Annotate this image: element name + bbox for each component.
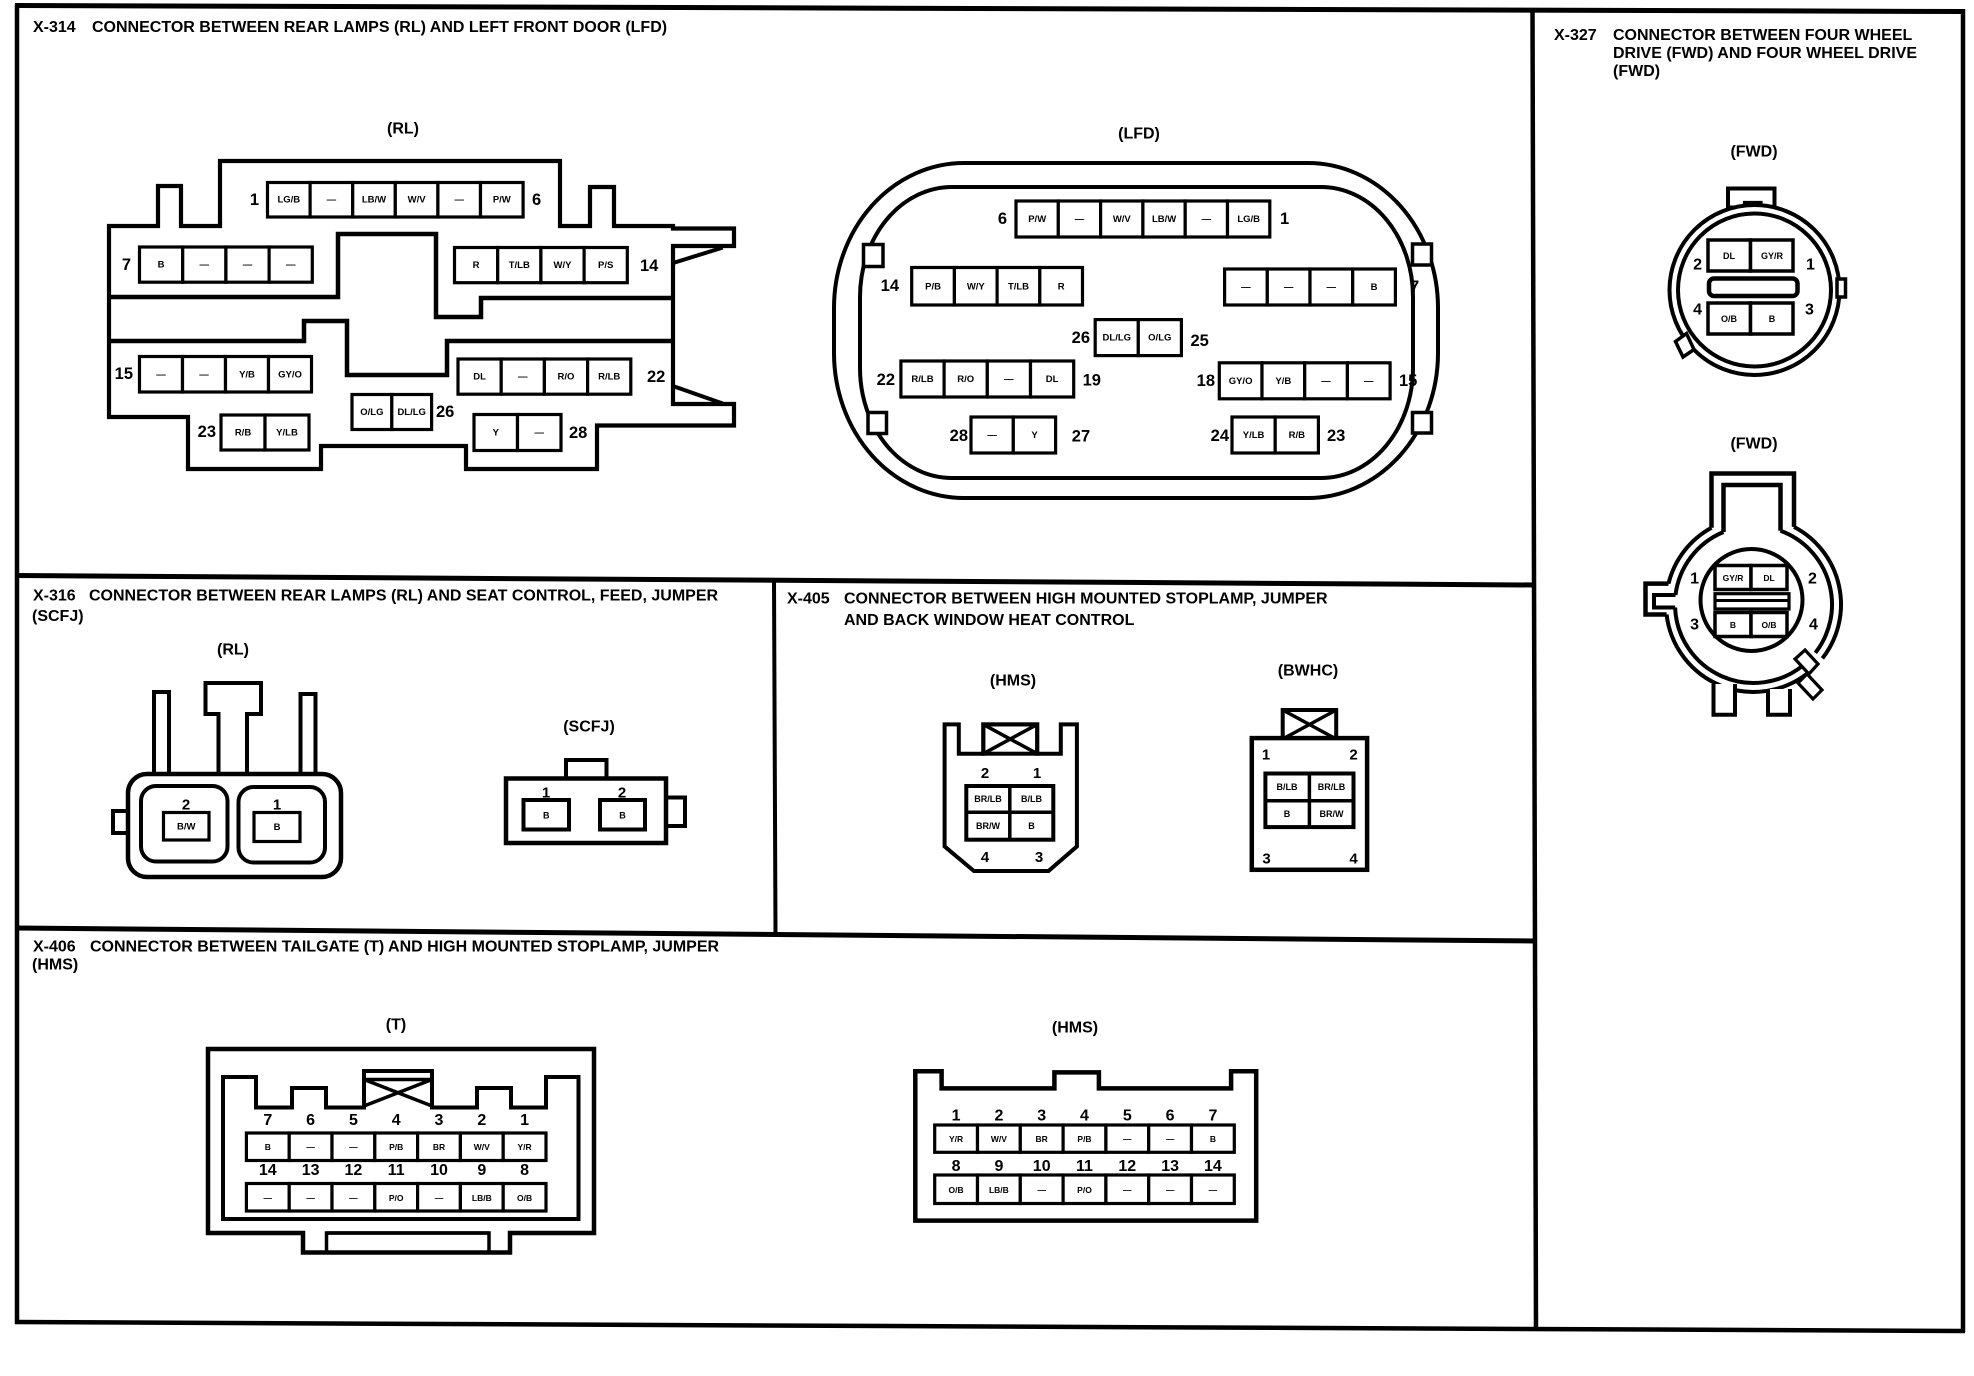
svg-text:Y/R: Y/R [949, 1134, 963, 1144]
svg-text:B: B [1210, 1134, 1216, 1144]
svg-text:DL: DL [1046, 374, 1059, 385]
svg-text:1: 1 [250, 191, 259, 209]
svg-text:O/B: O/B [1761, 620, 1776, 630]
svg-text:BR: BR [433, 1142, 445, 1152]
svg-text:—: — [1004, 374, 1014, 385]
svg-text:W/V: W/V [991, 1134, 1007, 1144]
svg-text:22: 22 [877, 371, 895, 389]
svg-text:CONNECTOR BETWEEN REAR LAMPS (: CONNECTOR BETWEEN REAR LAMPS (RL) AND LE… [92, 19, 667, 36]
svg-text:LB/B: LB/B [989, 1185, 1009, 1195]
svg-text:R: R [473, 260, 480, 271]
svg-text:DL/LG: DL/LG [1103, 333, 1132, 344]
svg-text:6: 6 [306, 1112, 315, 1129]
svg-text:1: 1 [1280, 210, 1289, 228]
svg-text:5: 5 [1123, 1108, 1132, 1125]
svg-text:B/W: B/W [177, 822, 196, 833]
svg-text:—: — [1166, 1134, 1175, 1144]
svg-text:T/LB: T/LB [1008, 281, 1029, 292]
svg-text:Y: Y [493, 428, 500, 439]
svg-text:28: 28 [569, 424, 587, 442]
svg-text:12: 12 [345, 1162, 363, 1179]
svg-text:LB/W: LB/W [1152, 214, 1176, 225]
svg-text:B: B [1284, 809, 1291, 819]
svg-text:—: — [1123, 1185, 1132, 1195]
svg-text:—: — [349, 1142, 358, 1152]
svg-text:8: 8 [520, 1162, 529, 1179]
svg-text:P/W: P/W [493, 195, 511, 206]
svg-text:—: — [349, 1193, 358, 1203]
svg-text:X-406: X-406 [33, 939, 76, 956]
svg-text:BR/LB: BR/LB [1318, 782, 1346, 792]
svg-text:R/B: R/B [235, 428, 252, 439]
svg-text:1: 1 [520, 1112, 529, 1129]
svg-text:B: B [1769, 314, 1776, 324]
svg-text:AND BACK WINDOW HEAT CONTROL: AND BACK WINDOW HEAT CONTROL [844, 612, 1135, 629]
svg-text:CONNECTOR BETWEEN REAR LAMPS (: CONNECTOR BETWEEN REAR LAMPS (RL) AND SE… [89, 588, 718, 605]
svg-text:CONNECTOR BETWEEN FOUR WHEEL: CONNECTOR BETWEEN FOUR WHEEL [1613, 27, 1912, 44]
svg-text:13: 13 [302, 1162, 320, 1179]
svg-text:8: 8 [952, 1158, 961, 1175]
svg-text:O/B: O/B [1721, 314, 1738, 324]
svg-text:—: — [454, 195, 464, 206]
svg-text:—: — [1209, 1185, 1218, 1195]
svg-text:2: 2 [1693, 257, 1702, 274]
svg-text:T/LB: T/LB [509, 260, 530, 271]
svg-text:—: — [306, 1193, 315, 1203]
svg-text:R/B: R/B [1289, 430, 1306, 441]
svg-text:—: — [1284, 282, 1294, 293]
svg-text:P/B: P/B [1077, 1134, 1091, 1144]
svg-text:(SCFJ): (SCFJ) [563, 719, 615, 736]
svg-text:13: 13 [1161, 1158, 1179, 1175]
svg-text:2: 2 [182, 797, 190, 814]
svg-text:B: B [619, 811, 626, 821]
svg-text:B: B [158, 260, 165, 271]
svg-text:4: 4 [1080, 1108, 1089, 1125]
svg-text:26: 26 [436, 403, 454, 421]
svg-text:B: B [1371, 282, 1378, 293]
svg-text:—: — [1202, 214, 1212, 225]
svg-text:—: — [1241, 282, 1251, 293]
svg-text:B/LB: B/LB [1021, 794, 1042, 804]
svg-text:(FWD): (FWD) [1730, 436, 1777, 453]
svg-text:5: 5 [349, 1112, 358, 1129]
svg-text:9: 9 [477, 1162, 486, 1179]
svg-text:P/W: P/W [1028, 214, 1046, 225]
svg-text:P/S: P/S [598, 260, 613, 271]
svg-text:7: 7 [263, 1112, 272, 1129]
svg-text:3: 3 [1035, 849, 1043, 866]
svg-text:1: 1 [1262, 747, 1270, 764]
svg-text:—: — [306, 1142, 315, 1152]
svg-text:10: 10 [430, 1162, 448, 1179]
svg-text:GY/O: GY/O [278, 369, 302, 380]
svg-text:(BWHC): (BWHC) [1278, 663, 1338, 680]
svg-text:X-314: X-314 [33, 19, 76, 36]
svg-text:—: — [1321, 376, 1331, 387]
svg-text:2: 2 [981, 765, 989, 782]
svg-text:26: 26 [1072, 329, 1090, 347]
svg-text:—: — [534, 428, 544, 439]
svg-text:3: 3 [1037, 1108, 1046, 1125]
svg-text:(HMS): (HMS) [990, 673, 1036, 690]
svg-text:1: 1 [1806, 257, 1815, 274]
svg-text:(LFD): (LFD) [1118, 126, 1160, 143]
svg-text:W/V: W/V [1113, 214, 1132, 225]
svg-text:6: 6 [532, 191, 541, 209]
svg-text:2: 2 [1808, 571, 1817, 588]
svg-text:18: 18 [1197, 372, 1215, 390]
svg-text:—: — [1075, 214, 1085, 225]
svg-text:1: 1 [1690, 571, 1699, 588]
svg-text:—: — [200, 260, 210, 271]
svg-text:3: 3 [1262, 851, 1270, 868]
svg-text:11: 11 [388, 1162, 405, 1179]
svg-text:O/LG: O/LG [1148, 333, 1171, 344]
svg-text:BR/W: BR/W [976, 821, 1000, 831]
svg-text:Y/LB: Y/LB [276, 428, 298, 439]
svg-text:7: 7 [122, 256, 131, 274]
svg-text:—: — [327, 195, 337, 206]
svg-text:Y/R: Y/R [518, 1142, 532, 1152]
svg-text:3: 3 [1690, 617, 1699, 634]
svg-text:2: 2 [477, 1112, 486, 1129]
svg-text:R/O: R/O [558, 372, 575, 383]
svg-text:(HMS): (HMS) [1052, 1020, 1098, 1037]
svg-text:2: 2 [1349, 747, 1357, 764]
svg-text:GY/R: GY/R [1723, 573, 1744, 583]
svg-text:BR/W: BR/W [1320, 809, 1344, 819]
svg-text:(RL): (RL) [217, 642, 249, 659]
svg-text:—: — [156, 369, 166, 380]
svg-text:P/O: P/O [1077, 1185, 1092, 1195]
svg-text:4: 4 [1809, 617, 1818, 634]
svg-text:14: 14 [1204, 1158, 1222, 1175]
svg-text:14: 14 [881, 277, 900, 295]
svg-text:W/Y: W/Y [554, 260, 573, 271]
svg-text:—: — [518, 372, 528, 383]
svg-text:15: 15 [115, 365, 133, 383]
svg-text:—: — [435, 1193, 444, 1203]
svg-text:O/B: O/B [949, 1185, 964, 1195]
svg-text:—: — [1037, 1185, 1046, 1195]
svg-text:1: 1 [273, 797, 281, 814]
svg-text:4: 4 [981, 849, 990, 866]
svg-text:B: B [1730, 620, 1736, 630]
svg-text:P/O: P/O [389, 1193, 404, 1203]
svg-text:LG/B: LG/B [1237, 214, 1260, 225]
svg-text:15: 15 [1399, 372, 1417, 390]
svg-text:LB/W: LB/W [362, 195, 386, 206]
svg-text:2: 2 [618, 785, 626, 802]
svg-text:4: 4 [392, 1112, 401, 1129]
svg-text:DL: DL [1723, 251, 1735, 261]
svg-text:14: 14 [259, 1162, 277, 1179]
svg-text:Y: Y [1031, 430, 1038, 441]
svg-text:CONNECTOR BETWEEN HIGH MOUNTED: CONNECTOR BETWEEN HIGH MOUNTED STOPLAMP,… [844, 591, 1328, 608]
svg-text:—: — [987, 430, 997, 441]
svg-text:7: 7 [1410, 278, 1419, 296]
svg-text:2: 2 [994, 1108, 1003, 1125]
svg-text:X-327: X-327 [1554, 27, 1597, 44]
svg-text:—: — [1123, 1134, 1132, 1144]
svg-text:W/Y: W/Y [967, 281, 986, 292]
svg-text:B: B [265, 1142, 271, 1152]
svg-text:B: B [274, 822, 281, 833]
svg-text:O/B: O/B [517, 1193, 532, 1203]
svg-text:B: B [1028, 821, 1035, 831]
svg-text:—: — [1327, 282, 1337, 293]
svg-text:B: B [543, 811, 550, 821]
svg-text:—: — [199, 369, 209, 380]
svg-text:(SCFJ): (SCFJ) [32, 608, 84, 625]
svg-text:DL: DL [1763, 573, 1774, 583]
svg-text:LG/B: LG/B [277, 195, 300, 206]
svg-text:(T): (T) [386, 1017, 406, 1034]
svg-text:25: 25 [1191, 332, 1209, 350]
svg-text:7: 7 [1208, 1108, 1217, 1125]
svg-text:22: 22 [647, 368, 665, 386]
svg-text:1: 1 [542, 785, 550, 802]
svg-text:12: 12 [1118, 1158, 1136, 1175]
svg-text:3: 3 [435, 1112, 444, 1129]
svg-text:LB/B: LB/B [472, 1193, 492, 1203]
svg-text:BR/LB: BR/LB [974, 794, 1002, 804]
svg-text:DL: DL [473, 372, 486, 383]
svg-text:P/B: P/B [925, 281, 941, 292]
svg-text:DRIVE (FWD) AND FOUR WHEEL DRI: DRIVE (FWD) AND FOUR WHEEL DRIVE [1613, 45, 1917, 62]
svg-text:28: 28 [950, 427, 968, 445]
svg-text:X-405: X-405 [787, 591, 830, 608]
svg-text:24: 24 [1211, 427, 1230, 445]
svg-text:4: 4 [1349, 851, 1358, 868]
svg-text:CONNECTOR BETWEEN TAILGATE (T): CONNECTOR BETWEEN TAILGATE (T) AND HIGH … [90, 939, 719, 956]
svg-text:W/V: W/V [474, 1142, 490, 1152]
svg-text:14: 14 [640, 257, 659, 275]
svg-text:DL/LG: DL/LG [397, 407, 426, 418]
svg-text:10: 10 [1033, 1158, 1051, 1175]
svg-text:—: — [243, 260, 253, 271]
svg-text:R: R [1058, 281, 1065, 292]
svg-text:9: 9 [994, 1158, 1003, 1175]
svg-text:—: — [286, 260, 296, 271]
svg-text:1: 1 [1033, 765, 1041, 782]
svg-text:6: 6 [998, 210, 1007, 228]
svg-text:O/LG: O/LG [360, 407, 383, 418]
svg-text:B/LB: B/LB [1277, 782, 1298, 792]
svg-text:19: 19 [1083, 372, 1101, 390]
svg-text:R/LB: R/LB [911, 374, 933, 385]
svg-text:Y/LB: Y/LB [1243, 430, 1265, 441]
svg-text:27: 27 [1072, 428, 1090, 446]
svg-text:(HMS): (HMS) [32, 957, 78, 974]
svg-text:P/B: P/B [389, 1142, 403, 1152]
svg-text:Y/B: Y/B [239, 369, 255, 380]
svg-text:1: 1 [952, 1108, 961, 1125]
svg-text:23: 23 [1327, 427, 1345, 445]
svg-text:GY/R: GY/R [1761, 251, 1784, 261]
svg-text:R/LB: R/LB [598, 372, 620, 383]
svg-text:X-316: X-316 [33, 588, 76, 605]
svg-text:BR: BR [1036, 1134, 1048, 1144]
svg-text:—: — [1364, 376, 1374, 387]
svg-text:R/O: R/O [957, 374, 974, 385]
svg-text:—: — [1166, 1185, 1175, 1195]
svg-text:Y/B: Y/B [1275, 376, 1291, 387]
svg-text:(FWD): (FWD) [1730, 144, 1777, 161]
svg-text:W/V: W/V [408, 195, 427, 206]
svg-text:GY/O: GY/O [1229, 376, 1253, 387]
svg-text:3: 3 [1805, 302, 1814, 319]
svg-text:(FWD): (FWD) [1613, 63, 1660, 80]
svg-text:(RL): (RL) [387, 121, 419, 138]
svg-text:6: 6 [1166, 1108, 1175, 1125]
svg-text:4: 4 [1693, 302, 1702, 319]
svg-text:11: 11 [1076, 1158, 1093, 1175]
svg-text:23: 23 [198, 423, 216, 441]
svg-text:—: — [264, 1193, 273, 1203]
